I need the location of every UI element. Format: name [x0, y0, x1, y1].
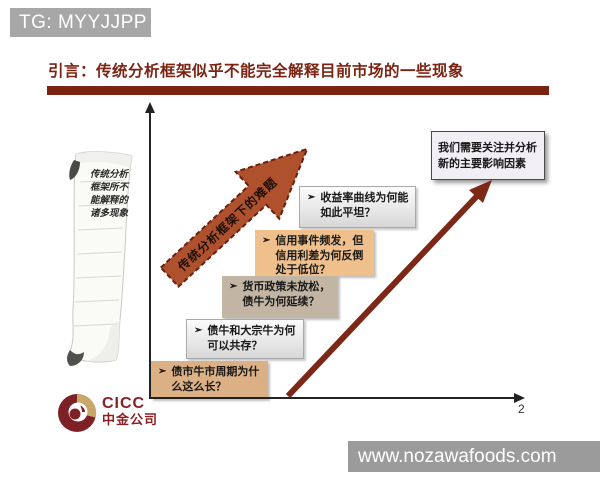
arrow-bullet-icon: ➢	[229, 280, 237, 315]
page-number: 2	[518, 402, 525, 416]
watermark-bar: www.nozawafoods.com	[348, 441, 600, 472]
cicc-logo-en: CICC	[102, 396, 158, 412]
question-box-monetary-policy: ➢ 货币政策未放松，债牛为何延续？	[222, 276, 338, 318]
tg-label-bar: TG: MYYJJPP	[10, 8, 151, 37]
question-text: 债市牛市周期为什么这么长？	[171, 365, 263, 396]
cicc-logo-text: CICC 中金公司	[102, 396, 158, 427]
arrow-bullet-icon: ➢	[194, 324, 202, 355]
scroll-line: 能解释的	[80, 194, 138, 207]
scroll-line: 传统分析	[80, 168, 138, 181]
page-title: 引言：传统分析框架似乎不能完全解释目前市场的一些现象	[48, 59, 568, 81]
question-text: 收益率曲线为何能如此平坦？	[320, 191, 410, 224]
scroll-graphic: 传统分析 框架所不 能解释的 诸多现象	[56, 140, 144, 368]
conclusion-box: 我们需要关注并分析新的主要影响因素	[431, 131, 545, 180]
cicc-logo-cn: 中金公司	[102, 412, 158, 427]
y-axis-arrowhead-icon	[145, 102, 155, 113]
scroll-text: 传统分析 框架所不 能解释的 诸多现象	[80, 168, 138, 220]
scroll-line: 框架所不	[80, 181, 138, 194]
arrow-bullet-icon: ➢	[262, 234, 270, 273]
big-trend-arrowhead-icon	[469, 180, 492, 203]
question-text: 信用事件频发，但信用利差为何反倒处于低位？	[275, 234, 369, 273]
question-text: 货币政策未放松，债牛为何延续？	[242, 280, 333, 315]
question-box-credit-events: ➢ 信用事件频发，但信用利差为何反倒处于低位？	[255, 230, 374, 276]
title-underline-rule	[47, 86, 549, 95]
slide: TG: MYYJJPP 引言：传统分析框架似乎不能完全解释目前市场的一些现象 传…	[0, 0, 600, 480]
question-box-bond-commodity: ➢ 债牛和大宗牛为何可以共存？	[186, 319, 304, 359]
scroll-line: 诸多现象	[80, 207, 138, 220]
cicc-logo: CICC 中金公司	[56, 392, 176, 438]
arrow-bullet-icon: ➢	[307, 191, 315, 224]
question-text: 债牛和大宗牛为何可以共存？	[207, 324, 298, 355]
question-box-yield-curve: ➢ 收益率曲线为何能如此平坦？	[299, 186, 416, 228]
tg-label-text: TG: MYYJJPP	[19, 12, 147, 33]
cicc-logo-icon	[56, 392, 98, 434]
watermark-text: www.nozawafoods.com	[358, 446, 557, 467]
conclusion-text: 我们需要关注并分析新的主要影响因素	[438, 140, 538, 171]
